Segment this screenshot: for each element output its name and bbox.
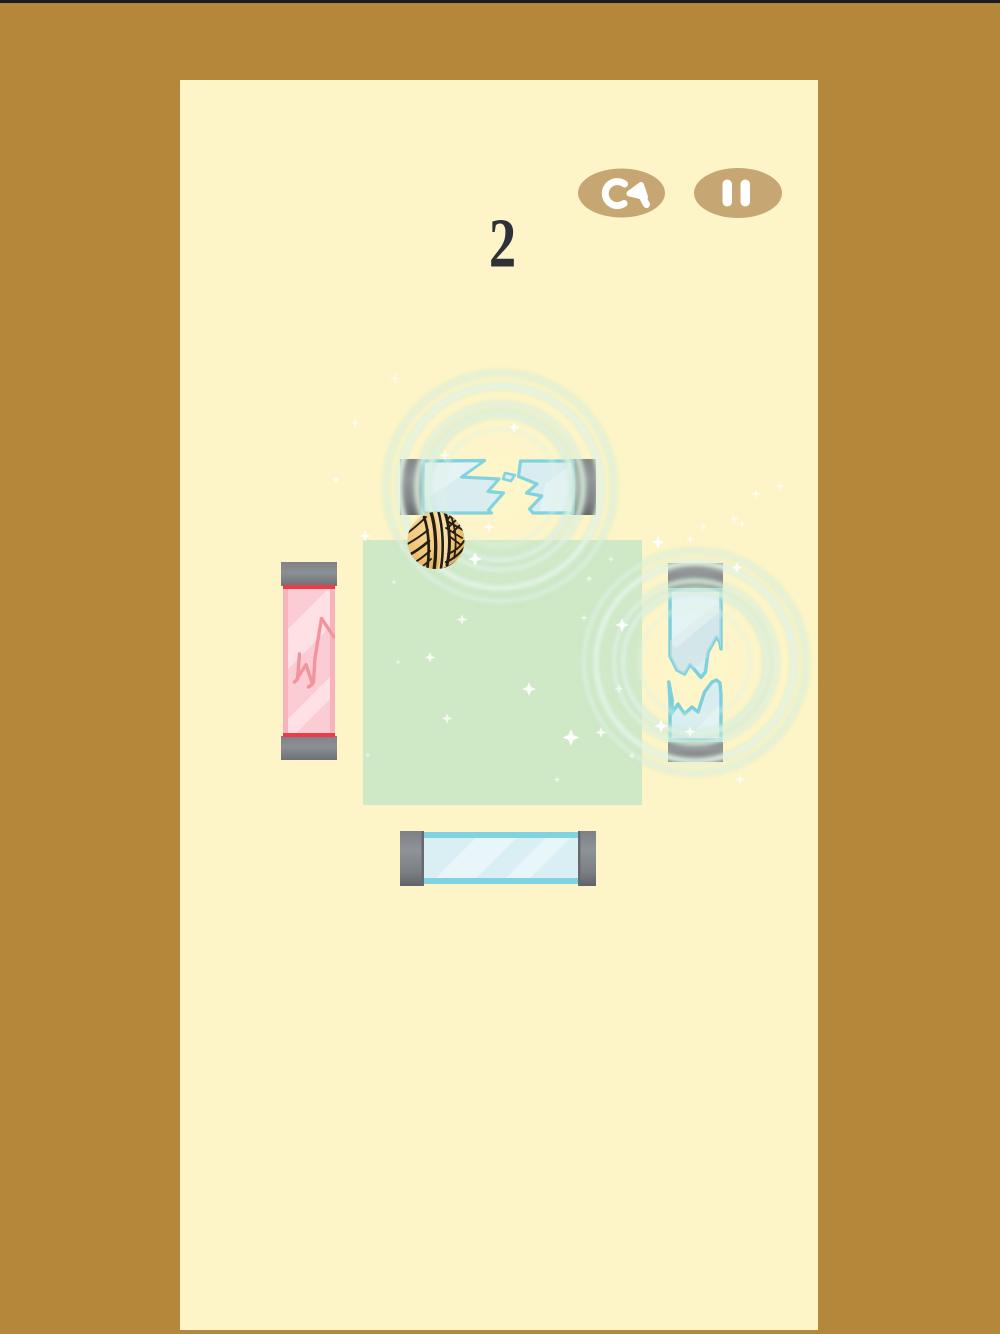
svg-text:2: 2 <box>489 204 516 282</box>
